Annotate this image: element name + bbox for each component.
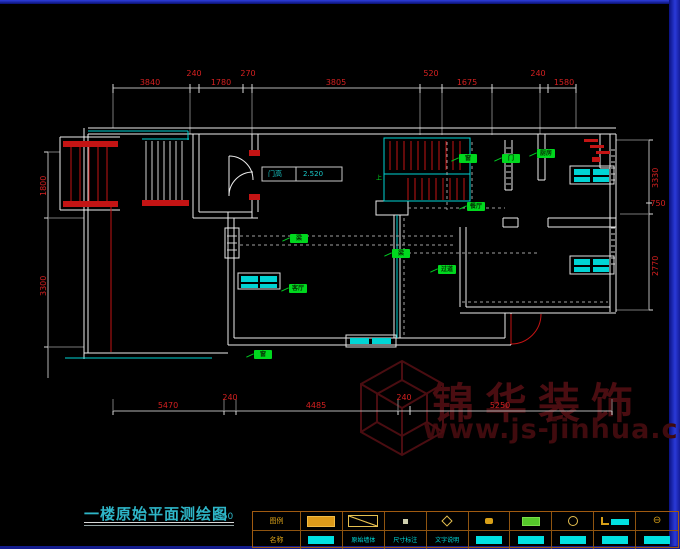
window-sample-icon <box>348 515 378 527</box>
watermark-logo-icon <box>361 361 443 455</box>
legend-cell <box>427 512 469 531</box>
legend-cell: 文字说明 <box>427 531 469 549</box>
dim-label: 5470 <box>158 402 178 410</box>
legend-header-cell: 名称 <box>253 531 301 549</box>
plan-annotation-label: 窗 <box>459 154 477 163</box>
legend-cell <box>469 512 511 531</box>
legend-cell <box>552 531 594 549</box>
entry-double-door <box>229 156 253 196</box>
legend-cell: 尺寸标注 <box>385 531 427 549</box>
dim-label: 2770 <box>652 256 660 276</box>
dim-label: 240 <box>222 394 237 402</box>
dim-label: 240 <box>396 394 411 402</box>
dim-label: 750 <box>650 200 665 208</box>
dim-label: 3805 <box>326 79 346 87</box>
walls <box>60 128 616 359</box>
dim-label: 240 <box>186 70 201 78</box>
door-jamb <box>249 150 260 156</box>
back-door-swing <box>511 314 541 344</box>
dim-label: 1675 <box>457 79 477 87</box>
window-symbol <box>238 273 280 289</box>
dimension-lines <box>48 88 649 411</box>
door-tag-value: 2.520 <box>303 170 323 178</box>
dim-label: 4485 <box>306 402 326 410</box>
dim-label: 270 <box>240 70 255 78</box>
plan-annotation-label: 梁 <box>290 234 308 243</box>
flue-icon <box>584 139 610 162</box>
legend-header-text: 图例 <box>270 517 284 525</box>
plan-annotation-label: 窗 <box>254 350 272 359</box>
theta-sample-icon: ⊖ <box>653 516 661 526</box>
door-tag-name: 门高 <box>268 170 282 178</box>
plan-annotation-label: 餐厅 <box>467 202 485 211</box>
legend-label: 原始墙体 <box>351 537 375 544</box>
dim-label: 3840 <box>140 79 160 87</box>
cyan-sample-bar <box>644 536 670 544</box>
window-symbols <box>238 166 614 347</box>
title-underline <box>84 522 234 523</box>
furniture-sample-icon <box>522 517 540 526</box>
dim-label: 1800 <box>40 176 48 196</box>
window-symbol <box>570 166 614 184</box>
door-jamb <box>249 194 260 200</box>
dim-label: 520 <box>423 70 438 78</box>
lamp-sample-icon <box>485 518 493 524</box>
dim-label: 240 <box>530 70 545 78</box>
legend-label: 尺寸标注 <box>393 537 417 544</box>
plan-annotation-label: 厨房 <box>537 149 555 158</box>
plan-annotation-label: 过道 <box>438 265 456 274</box>
column-sample-icon <box>403 519 408 524</box>
legend-cell <box>510 531 552 549</box>
plan-annotation-label: 门 <box>502 154 520 163</box>
plan-annotation-label: 梁 <box>392 249 410 258</box>
legend-cell <box>343 512 385 531</box>
legend-cell <box>636 531 678 549</box>
window-symbol <box>570 256 614 274</box>
stair-landing <box>376 201 408 215</box>
cyan-sample-bar <box>308 536 334 544</box>
drawing-title: 一楼原始平面测绘图 <box>84 503 228 524</box>
dim-label: 3330 <box>652 168 660 188</box>
legend-header-cell: 图例 <box>253 512 301 531</box>
legend-cell <box>594 512 636 531</box>
legend-cell: ⊖ <box>636 512 678 531</box>
dim-label: 1580 <box>554 79 574 87</box>
cad-drawing-canvas[interactable]: 锦华装饰 www.js-jinhua.com <box>0 0 680 549</box>
legend-cell <box>385 512 427 531</box>
plan-annotation-label: 客厅 <box>289 284 307 293</box>
legend-header-text: 名称 <box>270 536 284 544</box>
legend-label: 文字说明 <box>435 537 459 544</box>
cyan-sample-bar <box>476 536 502 544</box>
cyan-sample-bar <box>602 536 628 544</box>
stair-direction-note: 上 <box>376 175 382 182</box>
diamond-sample-icon <box>441 515 452 526</box>
circle-sample-icon <box>568 516 578 526</box>
dimension-extension-lines <box>48 93 649 411</box>
cyan-sample-bar <box>560 536 586 544</box>
corner-mark-icon <box>601 517 609 525</box>
cyan-sample-bar <box>611 519 629 525</box>
wall-sample-icon <box>307 516 335 527</box>
dim-label: 3300 <box>40 276 48 296</box>
legend-cell <box>301 512 343 531</box>
title-underline <box>84 525 234 526</box>
dim-label: 5250 <box>490 402 510 410</box>
dim-label: 1780 <box>211 79 231 87</box>
legend-cell: 原始墙体 <box>343 531 385 549</box>
cyan-sample-bar <box>518 536 544 544</box>
drawing-scale: 1:60 <box>213 512 233 522</box>
legend-cell <box>301 531 343 549</box>
legend-cell <box>594 531 636 549</box>
legend-cell <box>510 512 552 531</box>
legend-cell <box>552 512 594 531</box>
legend-cell <box>469 531 511 549</box>
legend-table: 图例 ⊖ 名称 原始墙体 尺寸标注 文字说明 <box>252 511 679 548</box>
